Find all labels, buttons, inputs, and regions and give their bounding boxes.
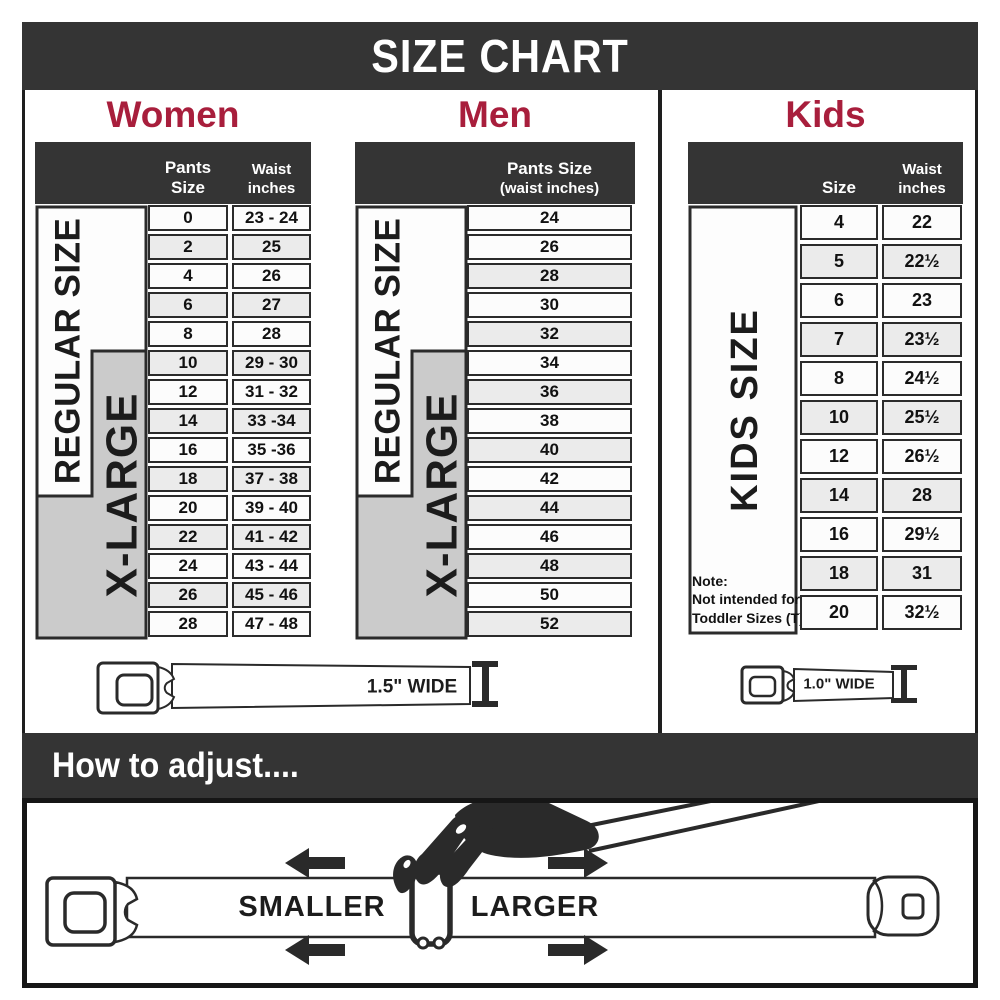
width-gauge-top-cap	[472, 661, 498, 667]
women-table-header: Pants Size Waist inches	[35, 142, 311, 204]
table-row: 1428	[800, 478, 962, 513]
table-row: 623	[800, 283, 962, 318]
table-row: 824½	[800, 361, 962, 396]
waist-cell: 24½	[882, 361, 962, 396]
size-cell: 5	[800, 244, 878, 279]
men-xlarge-label: X-LARGE	[418, 393, 467, 598]
waist-cell: 29 - 30	[232, 350, 311, 376]
kids-section-title: Kids	[688, 94, 963, 136]
pants-size-cell: 46	[467, 524, 632, 550]
women-section-title: Women	[35, 94, 311, 136]
waist-cell: 43 - 44	[232, 553, 311, 579]
table-row: 46	[467, 524, 632, 550]
waist-cell: 23 - 24	[232, 205, 311, 231]
waist-cell: 22	[882, 205, 962, 240]
table-row: 1029 - 30	[148, 350, 311, 376]
how-to-adjust-heading: How to adjust....	[52, 746, 299, 786]
table-row: 26	[467, 234, 632, 260]
pants-size-cell: 20	[148, 495, 228, 521]
kids-size-label: KIDS SIZE	[724, 308, 766, 512]
table-row: 1231 - 32	[148, 379, 311, 405]
women-size-zones: REGULAR SIZE X-LARGE	[35, 205, 148, 640]
pants-size-cell: 8	[148, 321, 228, 347]
table-row: 422	[800, 205, 962, 240]
pants-size-cell: 34	[467, 350, 632, 376]
table-row: 2039 - 40	[148, 495, 311, 521]
adult-buckle-button	[117, 675, 152, 705]
waist-cell: 37 - 38	[232, 466, 311, 492]
table-row: 1635 -36	[148, 437, 311, 463]
arrow-left-top-icon	[285, 848, 345, 878]
pants-size-cell: 30	[467, 292, 632, 318]
size-cell: 14	[800, 478, 878, 513]
size-chart-title-bar: SIZE CHART	[22, 22, 978, 90]
size-cell: 20	[800, 595, 878, 630]
pants-size-cell: 24	[148, 553, 228, 579]
width-gauge-top-cap	[891, 665, 917, 670]
pants-size-cell: 2	[148, 234, 228, 260]
men-table-header: Pants Size (waist inches)	[355, 142, 635, 204]
size-chart-page: SIZE CHART Women Pants Size Waist inches…	[0, 0, 1000, 1000]
arrow-right-bottom-icon	[548, 935, 608, 965]
pants-size-cell: 0	[148, 205, 228, 231]
arrow-left-bottom-icon	[285, 935, 345, 965]
pants-size-cell: 50	[467, 582, 632, 608]
table-row: 225	[148, 234, 311, 260]
table-row: 32	[467, 321, 632, 347]
waist-cell: 26½	[882, 439, 962, 474]
pants-size-cell: 42	[467, 466, 632, 492]
table-row: 44	[467, 495, 632, 521]
women-table-rows: 023 - 24 225 426 627 828 1029 - 30 1231 …	[148, 205, 311, 640]
table-row: 723½	[800, 322, 962, 357]
table-row: 1837 - 38	[148, 466, 311, 492]
waist-cell: 23½	[882, 322, 962, 357]
waist-cell: 47 - 48	[232, 611, 311, 637]
waist-cell: 35 -36	[232, 437, 311, 463]
table-row: 627	[148, 292, 311, 318]
table-row: 24	[467, 205, 632, 231]
pants-size-cell: 4	[148, 263, 228, 289]
women-col-header-waist: Waist inches	[232, 161, 311, 198]
table-row: 828	[148, 321, 311, 347]
men-table-rows: 24 26 28 30 32 34 36 38 40 42 44 46 48 5…	[467, 205, 632, 640]
women-regular-label: REGULAR SIZE	[49, 218, 88, 485]
size-cell: 8	[800, 361, 878, 396]
pants-size-cell: 6	[148, 292, 228, 318]
adjuster-foot	[434, 938, 444, 948]
pants-size-cell: 10	[148, 350, 228, 376]
pants-size-cell: 44	[467, 495, 632, 521]
adjust-illustration-box: SMALLER LARGER	[22, 798, 978, 988]
buckle-button	[65, 893, 105, 932]
pants-size-cell: 28	[148, 611, 228, 637]
men-regular-label: REGULAR SIZE	[369, 218, 408, 485]
kids-size-zone: KIDS SIZE	[688, 205, 798, 635]
men-size-zones: REGULAR SIZE X-LARGE	[355, 205, 468, 640]
table-row: 1025½	[800, 400, 962, 435]
table-row: 2443 - 44	[148, 553, 311, 579]
kids-col-header-size: Size	[800, 178, 878, 198]
waist-cell: 32½	[882, 595, 962, 630]
pants-size-cell: 52	[467, 611, 632, 637]
kids-belt-width-label: 1.0" WIDE	[803, 676, 874, 693]
adjust-illustration: SMALLER LARGER	[27, 803, 973, 983]
table-row: 2241 - 42	[148, 524, 311, 550]
pants-size-cell: 16	[148, 437, 228, 463]
pants-size-cell: 26	[148, 582, 228, 608]
kids-table-header: Size Waist inches	[688, 142, 963, 204]
size-cell: 16	[800, 517, 878, 552]
pants-size-cell: 48	[467, 553, 632, 579]
pants-size-cell: 22	[148, 524, 228, 550]
men-col-header-pants-size: Pants Size (waist inches)	[467, 159, 632, 198]
waist-cell: 25	[232, 234, 311, 260]
kids-buckle-button	[750, 677, 775, 696]
size-cell: 4	[800, 205, 878, 240]
adult-belt-width-label: 1.5" WIDE	[367, 677, 457, 698]
kids-belt-illustration: 1.0" WIDE	[735, 653, 930, 709]
waist-cell: 22½	[882, 244, 962, 279]
pants-size-cell: 14	[148, 408, 228, 434]
waist-cell: 41 - 42	[232, 524, 311, 550]
waist-cell: 31	[882, 556, 962, 591]
adult-belt-illustration: 1.5" WIDE	[90, 652, 510, 716]
table-row: 426	[148, 263, 311, 289]
table-row: 2645 - 46	[148, 582, 311, 608]
size-cell: 12	[800, 439, 878, 474]
table-row: 522½	[800, 244, 962, 279]
width-gauge-bar	[482, 665, 489, 703]
smaller-label: SMALLER	[238, 891, 385, 923]
width-gauge-bottom-cap	[891, 698, 917, 703]
women-col-header-pants-size: Pants Size	[148, 158, 228, 198]
men-section-title: Men	[355, 94, 635, 136]
waist-cell: 23	[882, 283, 962, 318]
table-row: 2032½	[800, 595, 962, 630]
larger-label: LARGER	[471, 891, 599, 923]
women-xlarge-label: X-LARGE	[98, 393, 147, 598]
table-row: 1831	[800, 556, 962, 591]
table-row: 34	[467, 350, 632, 376]
size-cell: 10	[800, 400, 878, 435]
table-row: 28	[467, 263, 632, 289]
table-row: 2847 - 48	[148, 611, 311, 637]
pants-size-cell: 38	[467, 408, 632, 434]
table-row: 1226½	[800, 439, 962, 474]
table-row: 42	[467, 466, 632, 492]
table-row: 1433 -34	[148, 408, 311, 434]
table-row: 1629½	[800, 517, 962, 552]
waist-cell: 26	[232, 263, 311, 289]
waist-cell: 33 -34	[232, 408, 311, 434]
table-row: 023 - 24	[148, 205, 311, 231]
table-row: 30	[467, 292, 632, 318]
pants-size-cell: 12	[148, 379, 228, 405]
waist-cell: 29½	[882, 517, 962, 552]
pants-size-cell: 26	[467, 234, 632, 260]
waist-cell: 28	[882, 478, 962, 513]
pants-size-cell: 18	[148, 466, 228, 492]
pants-size-cell: 40	[467, 437, 632, 463]
table-row: 48	[467, 553, 632, 579]
waist-cell: 45 - 46	[232, 582, 311, 608]
how-to-adjust-bar: How to adjust....	[22, 733, 978, 798]
table-row: 50	[467, 582, 632, 608]
kids-note: Note: Not intended for Toddler Sizes (T)	[692, 572, 804, 627]
belt-tongue-slot	[903, 895, 923, 918]
pants-size-cell: 32	[467, 321, 632, 347]
kids-col-header-waist: Waist inches	[882, 161, 962, 198]
size-cell: 6	[800, 283, 878, 318]
pants-size-cell: 24	[467, 205, 632, 231]
table-row: 40	[467, 437, 632, 463]
waist-cell: 27	[232, 292, 311, 318]
waist-cell: 28	[232, 321, 311, 347]
kids-buckle-wing	[783, 671, 794, 701]
page-title: SIZE CHART	[371, 29, 628, 83]
pants-size-cell: 28	[467, 263, 632, 289]
pants-size-cell: 36	[467, 379, 632, 405]
waist-cell: 31 - 32	[232, 379, 311, 405]
waist-cell: 25½	[882, 400, 962, 435]
adjuster-foot	[418, 938, 428, 948]
width-gauge-bottom-cap	[472, 701, 498, 707]
size-cell: 18	[800, 556, 878, 591]
size-cell: 7	[800, 322, 878, 357]
waist-cell: 39 - 40	[232, 495, 311, 521]
section-divider	[658, 90, 662, 733]
kids-table-rows: 422 522½ 623 723½ 824½ 1025½ 1226½ 1428 …	[800, 205, 962, 634]
table-row: 36	[467, 379, 632, 405]
table-row: 52	[467, 611, 632, 637]
width-gauge-bar	[901, 669, 907, 700]
table-row: 38	[467, 408, 632, 434]
